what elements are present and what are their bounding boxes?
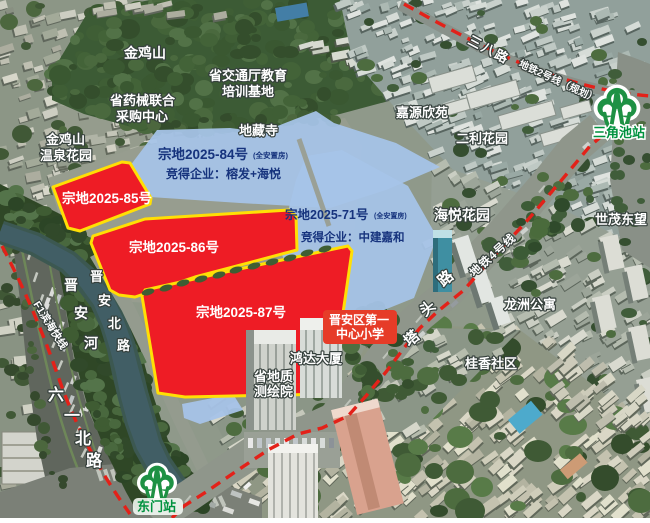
svg-text:测绘院: 测绘院 bbox=[254, 384, 293, 399]
svg-text:世茂东望: 世茂东望 bbox=[595, 212, 647, 227]
svg-text:东门站: 东门站 bbox=[137, 499, 176, 514]
svg-text:省交通厅教育: 省交通厅教育 bbox=[208, 68, 287, 83]
svg-text:温泉花园: 温泉花园 bbox=[40, 148, 92, 163]
svg-text:北: 北 bbox=[75, 430, 91, 448]
svg-text:宗地2025-71号: 宗地2025-71号 bbox=[285, 207, 368, 222]
svg-text:安: 安 bbox=[74, 305, 88, 321]
svg-text:宗地2025-87号: 宗地2025-87号 bbox=[196, 304, 286, 320]
svg-text:二利花园: 二利花园 bbox=[456, 131, 508, 146]
svg-text:省地质: 省地质 bbox=[253, 369, 293, 384]
svg-text:地藏寺: 地藏寺 bbox=[239, 123, 278, 138]
svg-text:培训基地: 培训基地 bbox=[222, 84, 274, 99]
svg-text:采购中心: 采购中心 bbox=[115, 109, 168, 124]
svg-text:竞得企业：中建嘉和: 竞得企业：中建嘉和 bbox=[301, 230, 405, 244]
svg-text:(全安置房): (全安置房) bbox=[253, 150, 288, 160]
svg-text:桂香社区: 桂香社区 bbox=[464, 356, 517, 371]
svg-text:金鸡山: 金鸡山 bbox=[45, 132, 85, 147]
svg-text:宗地2025-86号: 宗地2025-86号 bbox=[129, 239, 219, 255]
svg-text:晋安区第一: 晋安区第一 bbox=[329, 312, 389, 327]
svg-text:海悦花园: 海悦花园 bbox=[434, 207, 490, 223]
svg-text:竞得企业：榕发+海悦: 竞得企业：榕发+海悦 bbox=[166, 166, 281, 181]
svg-text:河: 河 bbox=[84, 335, 98, 351]
svg-text:北: 北 bbox=[108, 316, 121, 331]
svg-text:省药械联合: 省药械联合 bbox=[109, 93, 176, 108]
svg-text:晋: 晋 bbox=[90, 269, 103, 284]
svg-text:龙洲公寓: 龙洲公寓 bbox=[504, 297, 556, 312]
svg-text:一: 一 bbox=[64, 408, 80, 425]
svg-text:(全安置房): (全安置房) bbox=[374, 211, 407, 220]
svg-text:晋: 晋 bbox=[64, 277, 78, 293]
svg-text:六: 六 bbox=[48, 385, 64, 404]
svg-text:金鸡山: 金鸡山 bbox=[123, 45, 166, 61]
svg-text:中心小学: 中心小学 bbox=[336, 326, 384, 341]
svg-text:宗地2025-85号: 宗地2025-85号 bbox=[62, 190, 152, 206]
svg-text:路: 路 bbox=[86, 451, 103, 470]
svg-text:路: 路 bbox=[117, 338, 131, 353]
svg-text:三角池站: 三角池站 bbox=[593, 125, 645, 140]
svg-text:嘉源欣苑: 嘉源欣苑 bbox=[395, 105, 448, 120]
svg-text:鸿达大厦: 鸿达大厦 bbox=[290, 351, 343, 366]
svg-text:安: 安 bbox=[98, 293, 111, 308]
svg-text:宗地2025-84号: 宗地2025-84号 bbox=[158, 146, 248, 162]
